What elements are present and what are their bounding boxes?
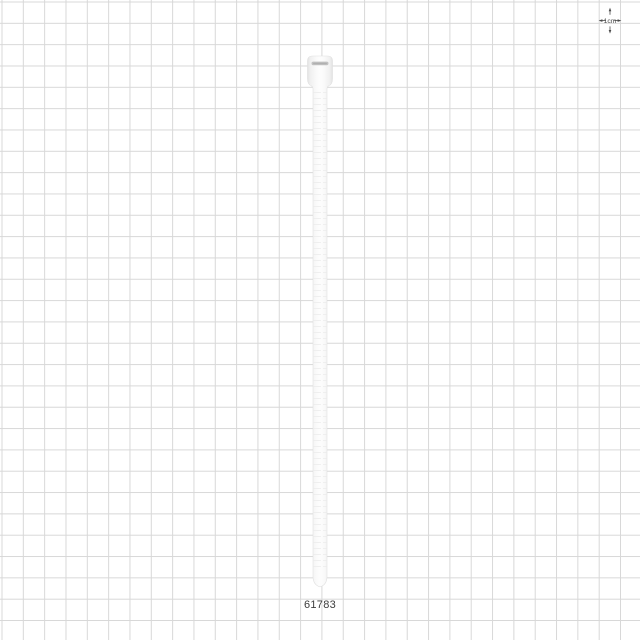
cable-tie-body	[308, 56, 333, 587]
cable-tie-serrations	[314, 92, 327, 572]
scale-arrowheads-icon	[599, 8, 622, 34]
scale-indicator: 1cm	[0, 0, 640, 640]
product-image-canvas: 1cm 61783	[0, 0, 640, 640]
scale-label: 1cm	[604, 18, 617, 25]
cable-tie-head-slot-inner	[313, 63, 327, 64]
cable-tie-image	[0, 0, 640, 640]
cable-tie-head-slot	[312, 62, 329, 66]
part-number-label: 61783	[0, 599, 640, 612]
scale-arrows-icon	[602, 10, 618, 32]
